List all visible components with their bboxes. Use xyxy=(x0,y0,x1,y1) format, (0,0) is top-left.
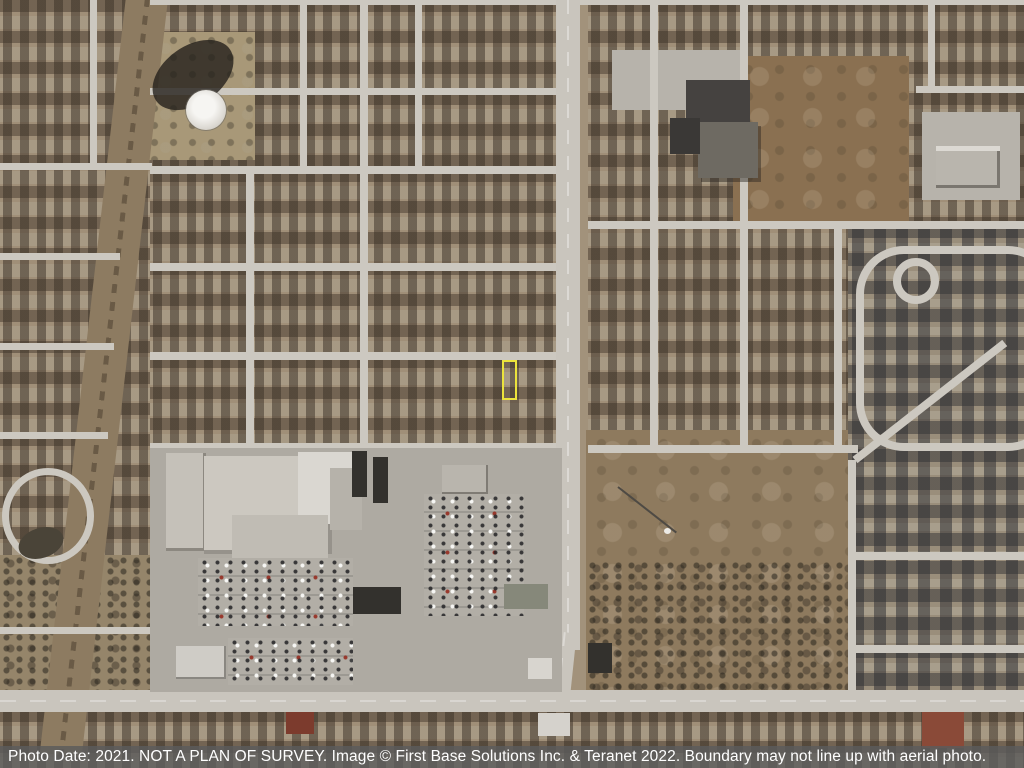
subdivision-street-2 xyxy=(848,645,1024,653)
street-west-3 xyxy=(0,343,114,350)
residential-block-mid xyxy=(150,170,568,450)
street-vert-mid-4 xyxy=(415,0,422,168)
apartment-building-3 xyxy=(351,587,401,614)
school-building-wing xyxy=(670,118,700,154)
street-vert-mid-3 xyxy=(360,0,368,446)
street-west-1 xyxy=(0,163,152,170)
apartment-building-2 xyxy=(373,457,388,503)
crane-cab xyxy=(664,528,671,534)
white-roof-building-south xyxy=(538,713,570,736)
street-vert-northeast xyxy=(928,0,935,88)
vacant-lot-tree-cover xyxy=(586,560,862,694)
street-west-2 xyxy=(0,253,120,260)
gas-station xyxy=(528,658,552,679)
street-east-2 xyxy=(588,445,858,453)
property-boundary xyxy=(502,360,517,400)
main-road-bottom xyxy=(0,690,1024,712)
building-east xyxy=(442,465,488,494)
cul-de-sac xyxy=(893,258,939,304)
building-by-intersection xyxy=(588,643,612,673)
street-mid-1 xyxy=(150,166,562,174)
street-west-5 xyxy=(0,627,175,634)
commercial-building-northeast xyxy=(936,146,1000,188)
plaza-parking-south xyxy=(228,638,353,685)
street-vert-east-2 xyxy=(740,0,748,448)
school-field xyxy=(733,56,909,226)
aerial-photo: Photo Date: 2021. NOT A PLAN OF SURVEY. … xyxy=(0,0,1024,768)
caption-bar: Photo Date: 2021. NOT A PLAN OF SURVEY. … xyxy=(0,746,1024,768)
school-building-south xyxy=(698,122,758,178)
street-vert-east-3 xyxy=(834,225,842,447)
plaza-wing-west xyxy=(166,453,206,551)
street-vert-mid-1 xyxy=(246,172,254,446)
street-vert-mid-2 xyxy=(300,0,307,168)
building-east-2 xyxy=(504,584,548,609)
street-west-4 xyxy=(0,432,108,439)
water-tower xyxy=(186,90,226,130)
subdivision-street-vert xyxy=(848,460,856,695)
street-vert-west-1 xyxy=(90,0,97,166)
building-southwest xyxy=(176,646,226,679)
red-roof-building-1 xyxy=(286,712,314,734)
subdivision-street-1 xyxy=(848,552,1024,560)
street-vert-east-1 xyxy=(650,0,658,448)
caption-text: Photo Date: 2021. NOT A PLAN OF SURVEY. … xyxy=(0,746,986,768)
red-roof-building-2 xyxy=(922,712,964,748)
street-mid-3 xyxy=(150,352,562,360)
apartment-building-1 xyxy=(352,451,367,497)
street-mid-2 xyxy=(150,263,562,271)
street-top xyxy=(150,0,1024,5)
plaza-parking-main xyxy=(198,558,353,626)
